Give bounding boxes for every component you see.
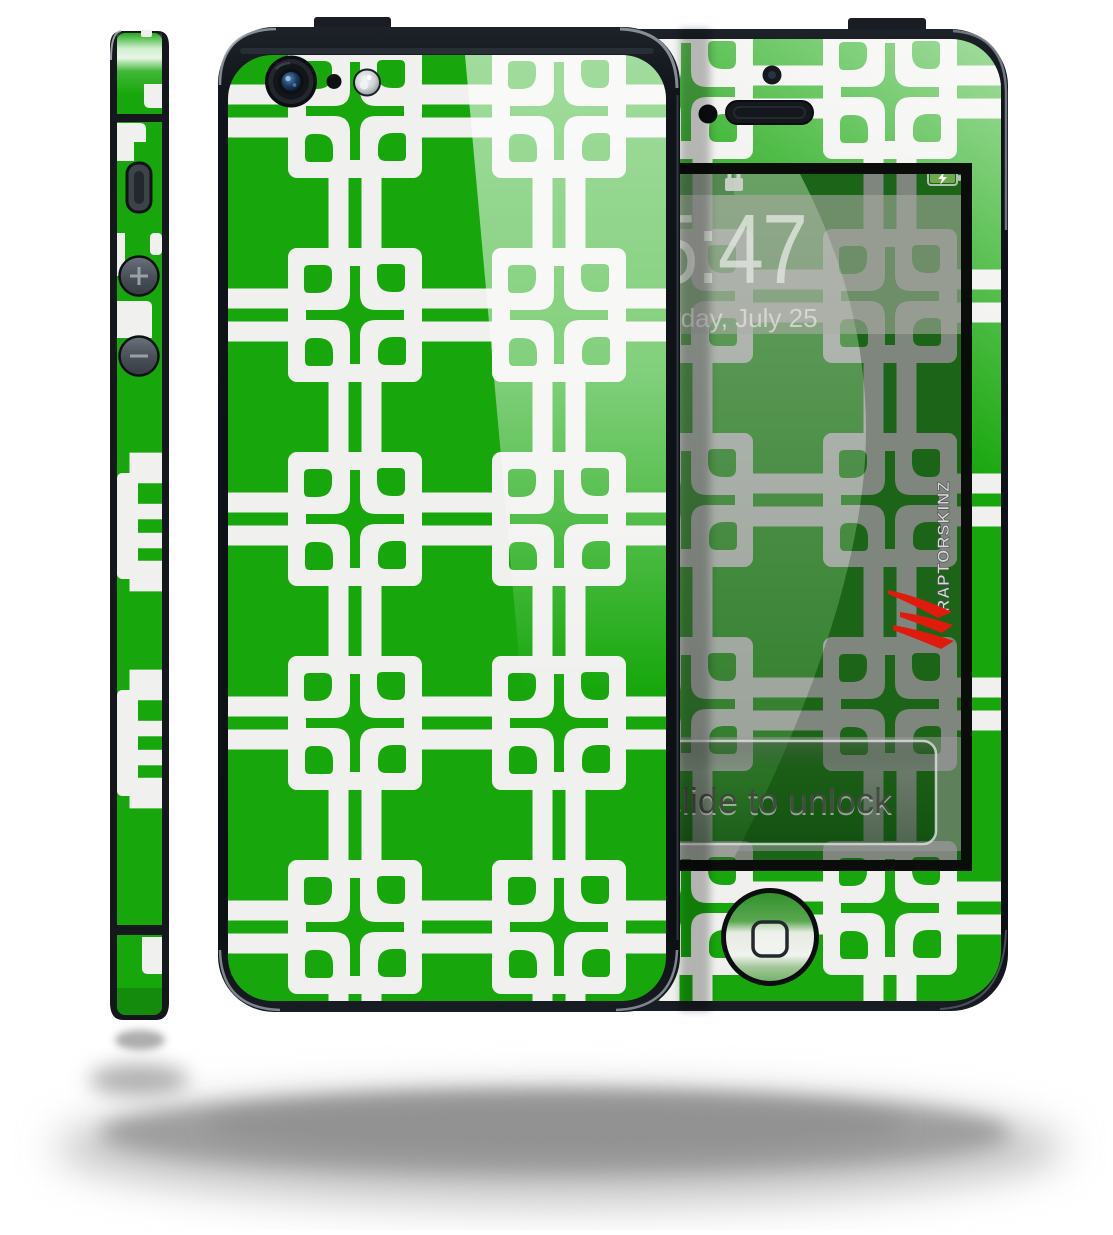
svg-text:RAPTORSKINZ: RAPTORSKINZ <box>934 481 953 612</box>
